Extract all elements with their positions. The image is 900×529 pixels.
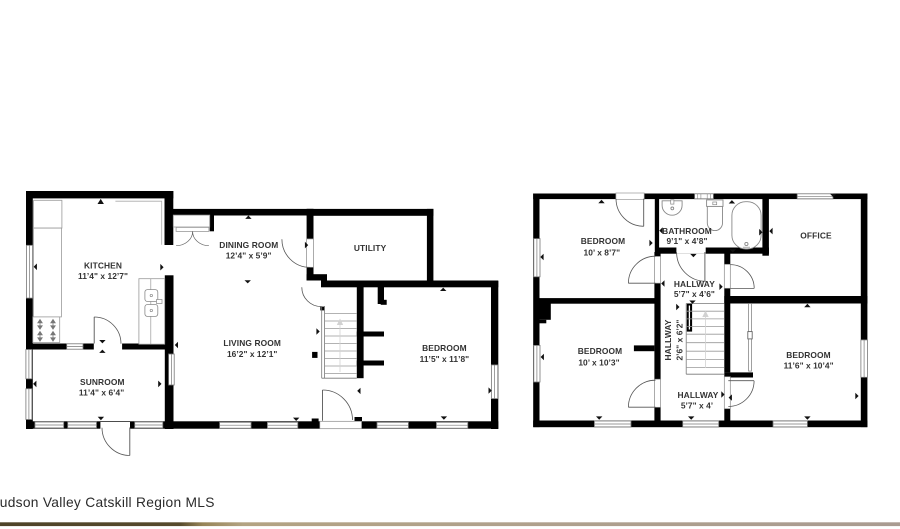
svg-text:9’1" x 4’8": 9’1" x 4’8" <box>666 236 707 246</box>
svg-text:16’2" x 12’1": 16’2" x 12’1" <box>227 349 278 359</box>
svg-text:OFFICE: OFFICE <box>800 231 832 241</box>
svg-text:11’5" x 11’8": 11’5" x 11’8" <box>420 354 470 364</box>
svg-text:BATHROOM: BATHROOM <box>662 226 712 236</box>
svg-text:HALLWAY: HALLWAY <box>677 390 718 400</box>
svg-text:11’6" x 10’4": 11’6" x 10’4" <box>784 361 834 371</box>
svg-text:BEDROOM: BEDROOM <box>422 343 467 353</box>
svg-text:11’4" x 6’4": 11’4" x 6’4" <box>79 388 124 398</box>
svg-text:10’ x 8’7": 10’ x 8’7" <box>583 247 620 257</box>
svg-text:5’7" x 4’6": 5’7" x 4’6" <box>674 289 715 299</box>
svg-text:UTILITY: UTILITY <box>354 243 387 253</box>
svg-text:DINING ROOM: DINING ROOM <box>219 240 278 250</box>
svg-text:BEDROOM: BEDROOM <box>581 236 626 246</box>
svg-text:BEDROOM: BEDROOM <box>578 346 623 356</box>
svg-text:2’6" x 6’2": 2’6" x 6’2" <box>675 319 685 360</box>
svg-text:HALLWAY: HALLWAY <box>663 319 673 360</box>
svg-text:12’4" x 5’9": 12’4" x 5’9" <box>226 251 272 261</box>
svg-text:BEDROOM: BEDROOM <box>786 350 831 360</box>
svg-text:10’ x 10’3": 10’ x 10’3" <box>578 358 619 368</box>
svg-text:5’7" x 4’: 5’7" x 4’ <box>681 400 713 410</box>
svg-text:KITCHEN: KITCHEN <box>84 260 122 270</box>
svg-text:SUNROOM: SUNROOM <box>80 377 125 387</box>
svg-text:11’4" x 12’7": 11’4" x 12’7" <box>78 271 128 281</box>
svg-text:HALLWAY: HALLWAY <box>674 279 715 289</box>
svg-text:LIVING ROOM: LIVING ROOM <box>223 338 281 348</box>
svg-text:Hudson Valley Catskill Region: Hudson Valley Catskill Region MLS <box>0 495 215 510</box>
